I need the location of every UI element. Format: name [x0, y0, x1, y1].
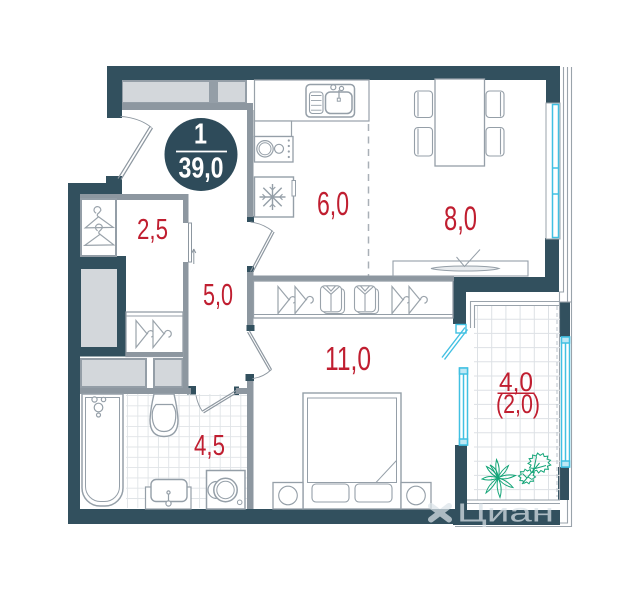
svg-text:8,0: 8,0	[444, 200, 477, 238]
svg-text:(2,0): (2,0)	[496, 389, 540, 419]
svg-text:4,5: 4,5	[194, 430, 225, 462]
svg-text:39,0: 39,0	[179, 153, 224, 185]
svg-text:2,5: 2,5	[137, 214, 168, 246]
svg-text:Циан: Циан	[457, 498, 554, 528]
svg-text:5,0: 5,0	[203, 277, 233, 312]
svg-text:11,0: 11,0	[325, 340, 371, 377]
svg-text:1: 1	[194, 119, 207, 151]
svg-text:6,0: 6,0	[317, 185, 349, 222]
